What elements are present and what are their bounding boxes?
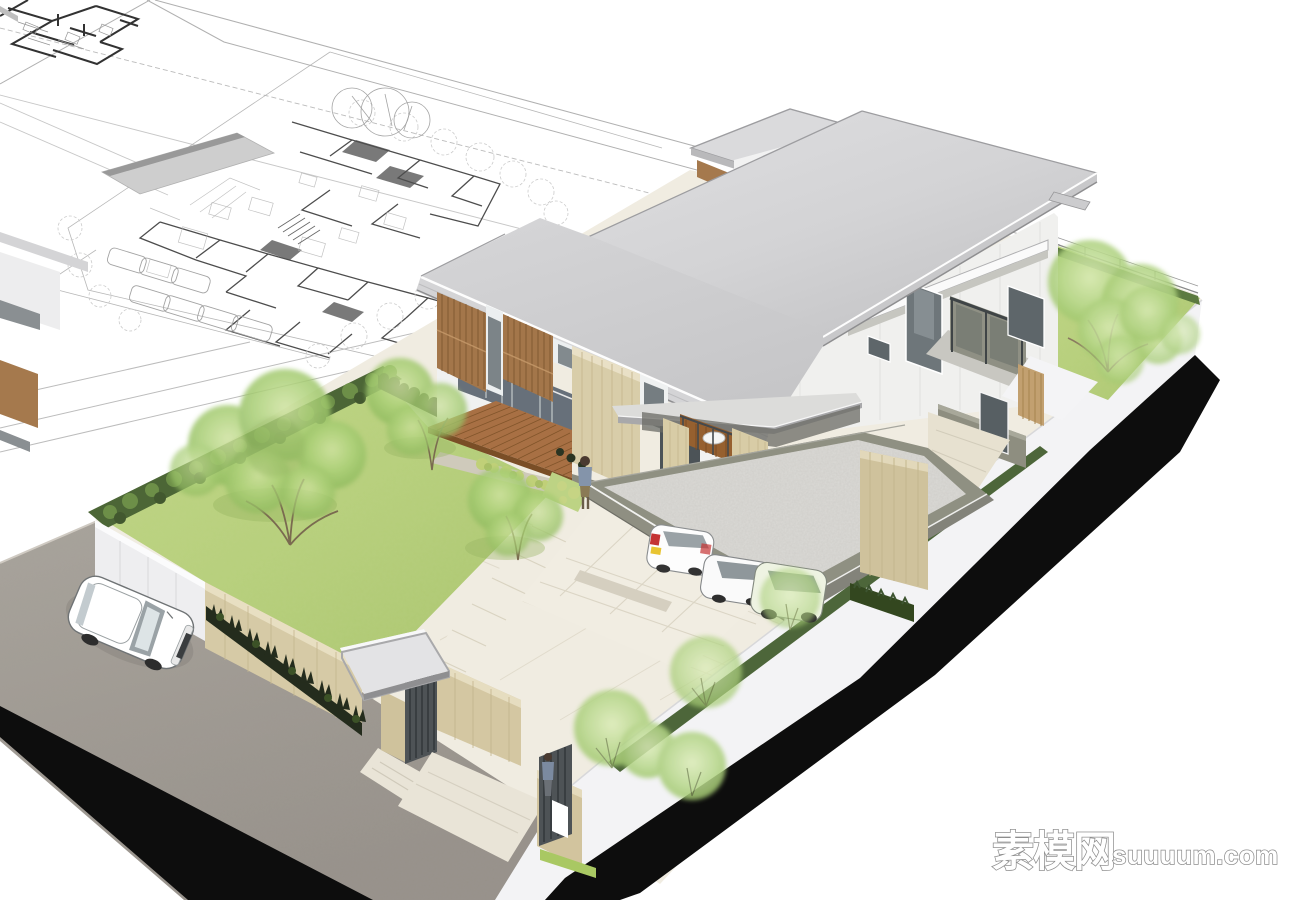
svg-text:suuuum.com: suuuum.com	[1112, 840, 1279, 870]
svg-text:素模网: 素模网	[992, 828, 1115, 875]
